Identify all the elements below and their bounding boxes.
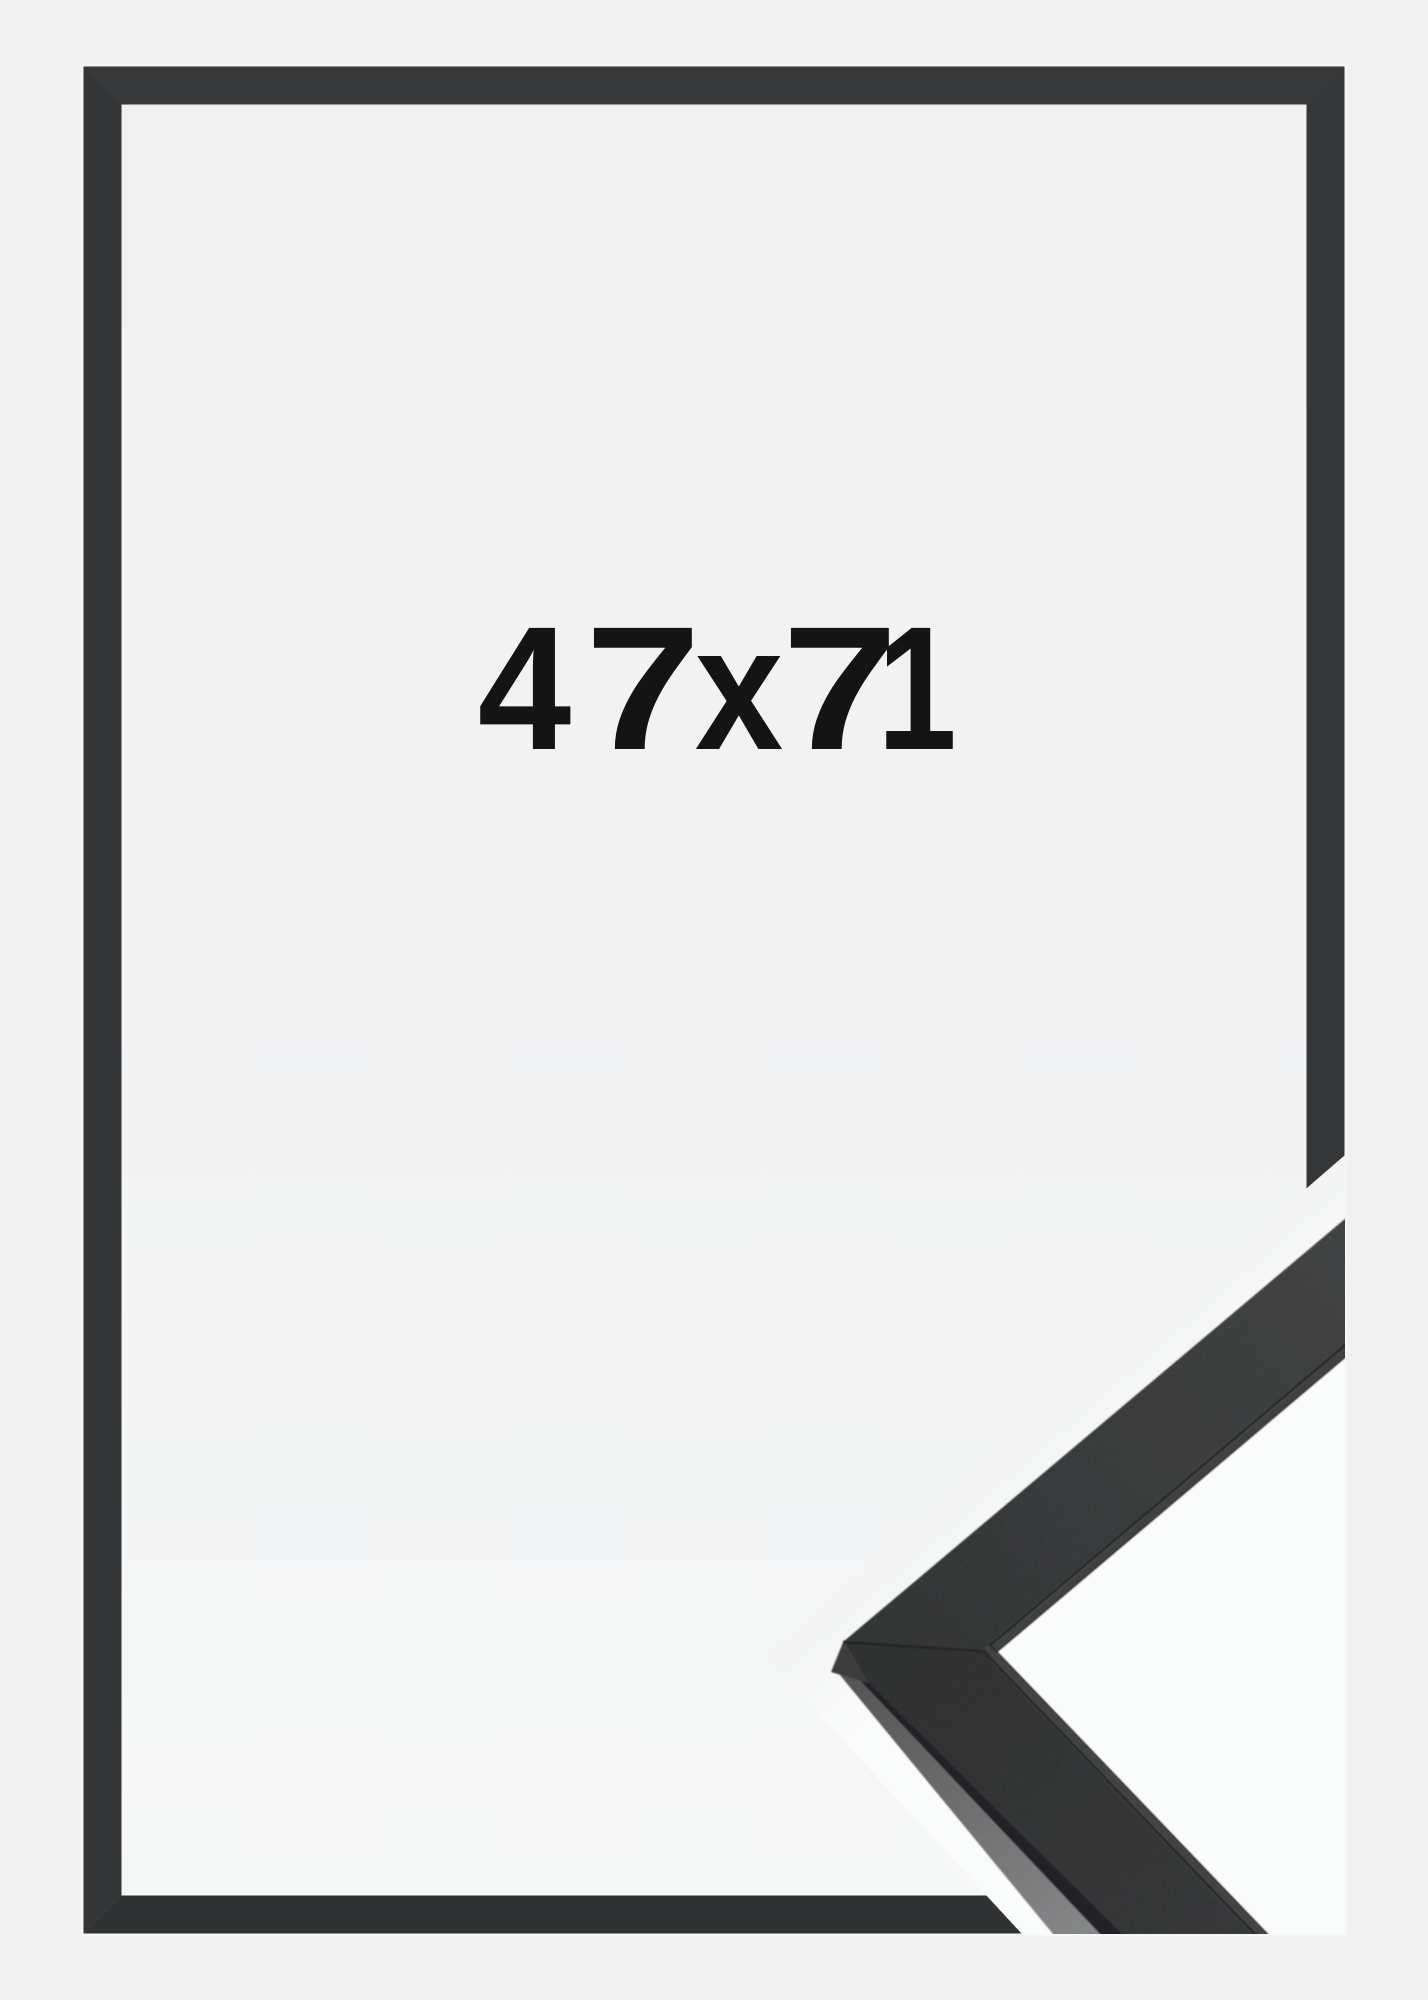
svg-text:1: 1 [877, 591, 957, 787]
svg-text:x: x [695, 591, 783, 787]
svg-text:7: 7 [585, 591, 701, 787]
svg-text:4: 4 [478, 591, 572, 787]
